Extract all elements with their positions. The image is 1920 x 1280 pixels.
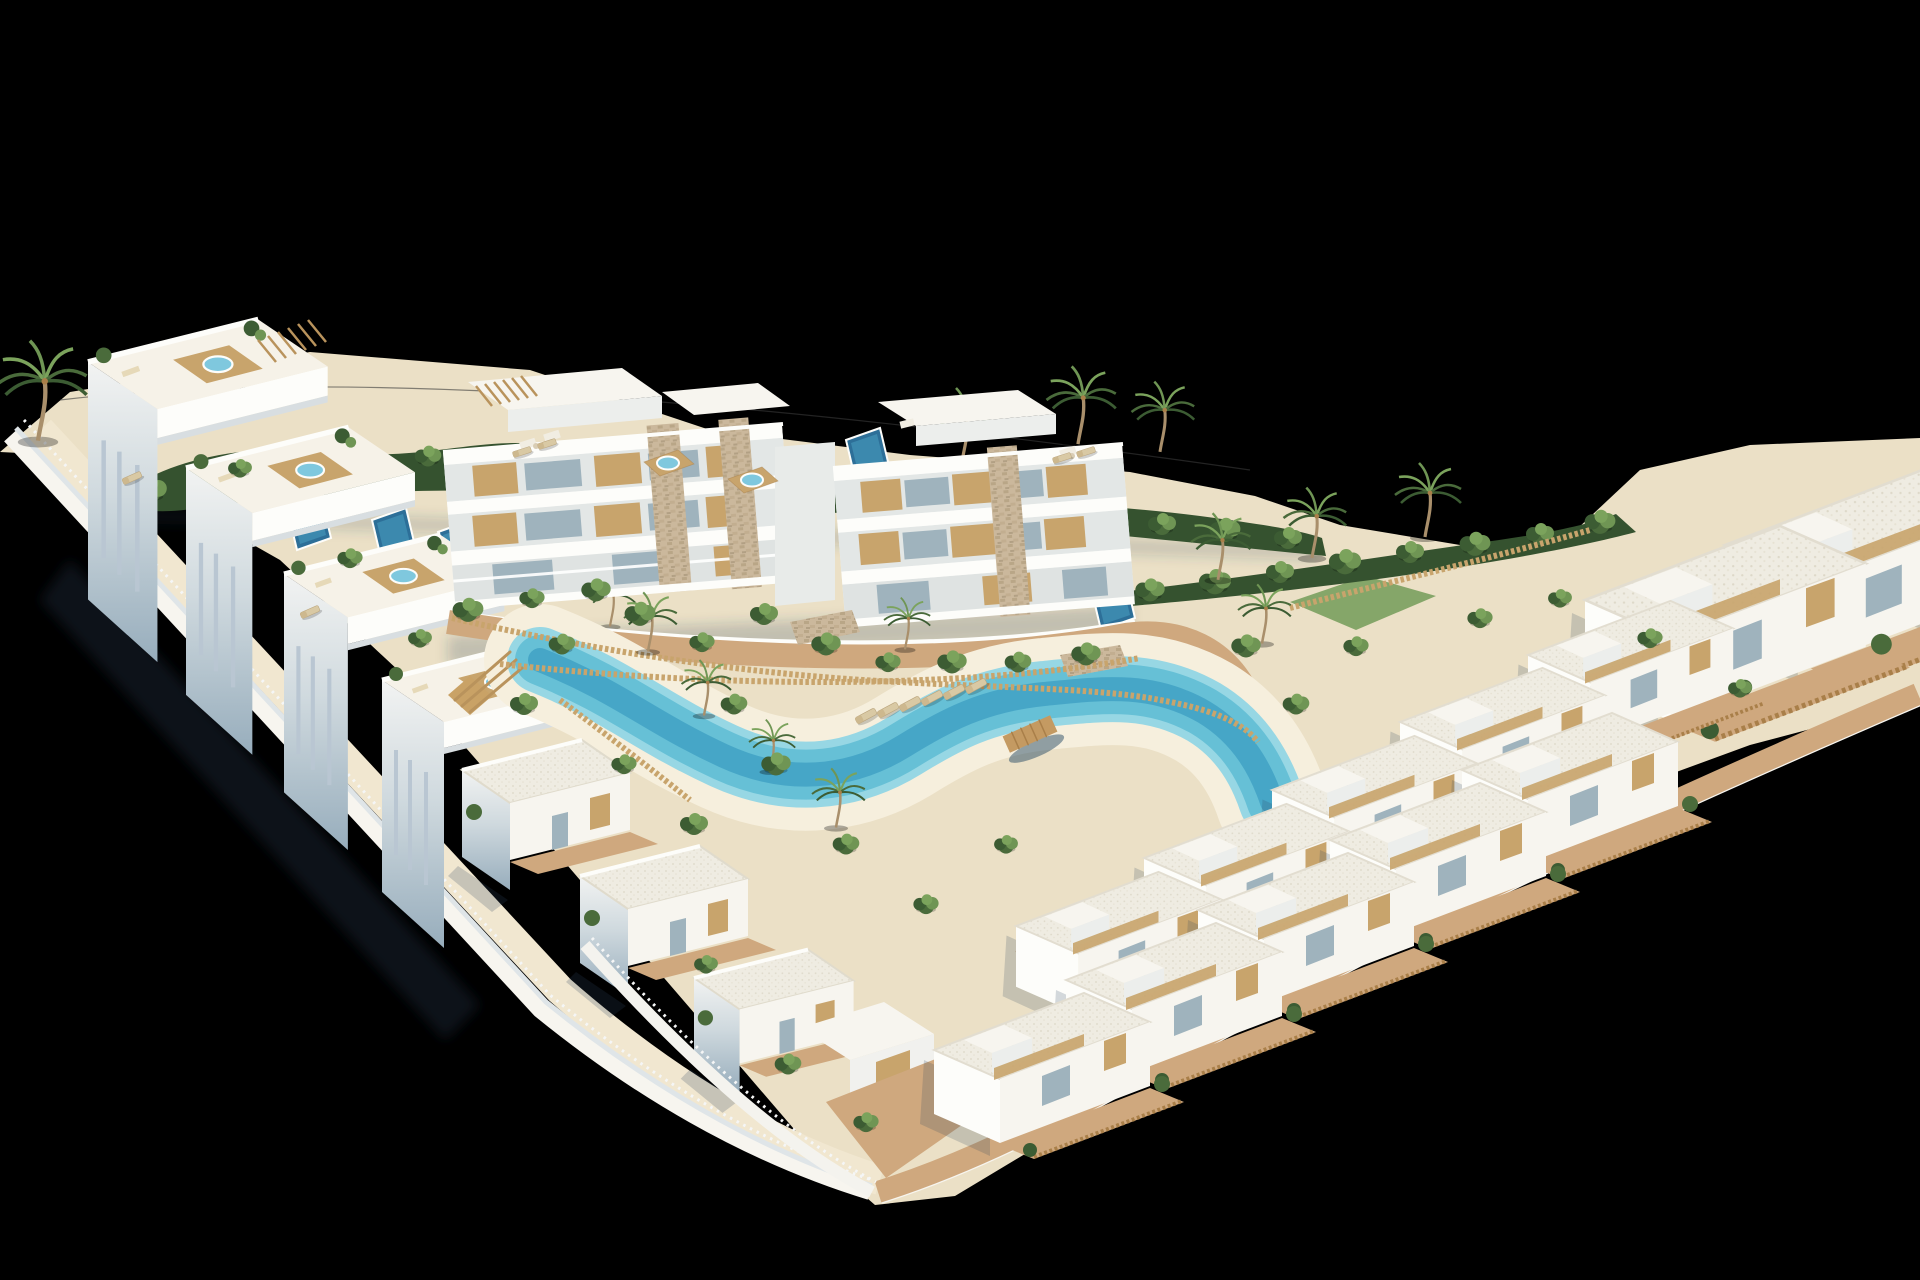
render-figure: Aerial 3D render of a coastal residentia… [0,0,1920,1280]
aerial-render: Aerial 3D render of a coastal residentia… [0,0,1920,1280]
